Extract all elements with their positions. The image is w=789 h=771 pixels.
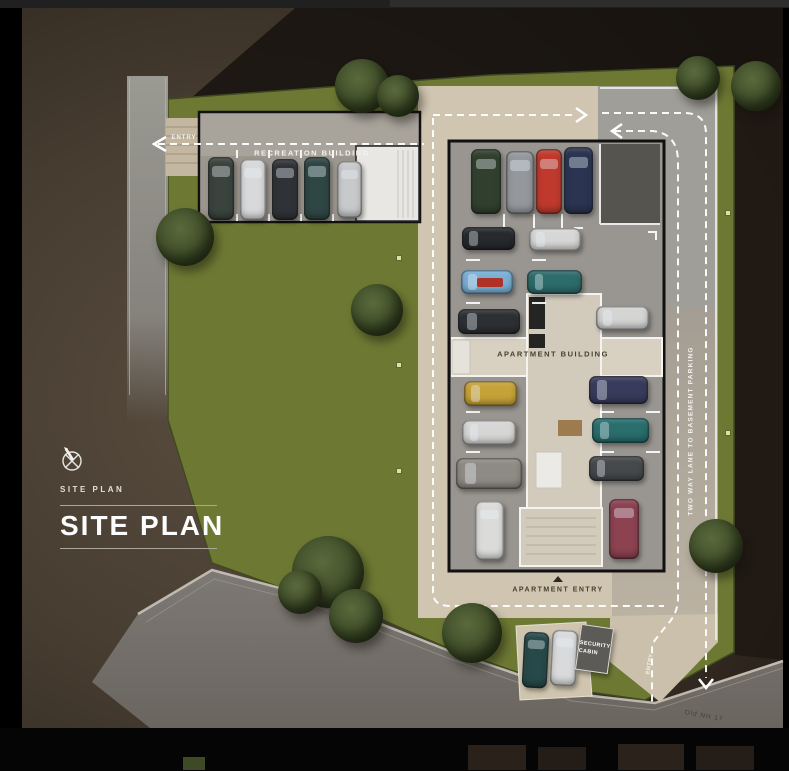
panel-divider-top — [60, 505, 217, 506]
car — [208, 157, 234, 220]
panel-eyebrow: SITE PLAN — [60, 485, 230, 494]
car — [596, 306, 649, 330]
tree — [676, 56, 720, 100]
lawn-lamp — [396, 362, 402, 368]
car — [458, 309, 520, 334]
car — [592, 418, 649, 443]
car — [522, 631, 550, 688]
tree — [329, 589, 383, 643]
car — [240, 159, 266, 220]
tree — [689, 519, 743, 573]
car — [304, 157, 330, 220]
tree — [292, 536, 364, 608]
entry-bottom-label: ENTRY — [645, 653, 655, 675]
lawn-lamp — [725, 210, 731, 216]
car — [529, 228, 581, 251]
car — [464, 381, 517, 406]
plan-labels: ENTRY RECREATION BUILDING APARTMENT BUIL… — [0, 0, 789, 771]
page-title: SITE PLAN — [60, 510, 230, 542]
paved-areas — [166, 86, 718, 702]
car — [337, 161, 362, 218]
tree — [731, 61, 781, 111]
site-plan-rendering — [0, 0, 789, 771]
bottom-road — [92, 570, 783, 728]
site-lawn — [168, 66, 734, 700]
car — [550, 629, 579, 686]
apartment-building-block — [449, 141, 664, 571]
recreation-building-label: RECREATION BUILDING — [254, 149, 370, 158]
car — [462, 227, 515, 250]
car — [471, 149, 501, 214]
bottom-strip-previews — [0, 728, 789, 771]
site-plan-panel: SITE PLAN SITE PLAN — [60, 447, 230, 553]
drafting-compass-icon — [60, 447, 84, 473]
car — [272, 159, 298, 220]
car — [609, 499, 639, 559]
car — [536, 149, 562, 214]
backdrop — [0, 0, 789, 728]
tree — [335, 59, 389, 113]
tree — [442, 603, 502, 663]
recreation-building-block — [199, 112, 420, 222]
left-road — [127, 76, 168, 422]
car — [589, 376, 648, 404]
route-arrowheads — [154, 108, 713, 688]
lawn-lamp — [396, 468, 402, 474]
entry-top-label: ENTRY — [171, 135, 196, 141]
security-cabin-label: SECURITY CABIN — [578, 639, 611, 660]
site-plan-page: { "panel": { "eyebrow": "SITE PLAN", "ti… — [0, 0, 789, 771]
trees-layer — [0, 0, 789, 771]
two-way-lane-label: TWO WAY LANE TO BASEMENT PARKING — [688, 346, 695, 515]
tree — [156, 208, 214, 266]
car — [461, 270, 513, 294]
panel-divider-bottom — [60, 548, 217, 549]
car — [475, 501, 504, 560]
car — [506, 151, 534, 214]
apartment-entry-label: APARTMENT ENTRY — [512, 587, 603, 594]
security-cabin: SECURITY CABIN — [575, 624, 614, 674]
apartment-building-label: APARTMENT BUILDING — [497, 350, 609, 359]
car — [564, 147, 593, 214]
lawn-lamp — [725, 430, 731, 436]
lawn-lamp — [396, 255, 402, 261]
car — [456, 458, 522, 489]
car — [462, 420, 516, 445]
road-name-label: Old NH 17 — [684, 709, 724, 723]
apartment-entry-arrow-icon — [553, 576, 563, 582]
tree — [377, 75, 419, 117]
car — [527, 270, 582, 294]
car — [589, 456, 644, 481]
tree — [278, 570, 322, 614]
tree — [351, 284, 403, 336]
cars-layer — [0, 0, 789, 771]
drive-route-dashes — [158, 113, 706, 704]
